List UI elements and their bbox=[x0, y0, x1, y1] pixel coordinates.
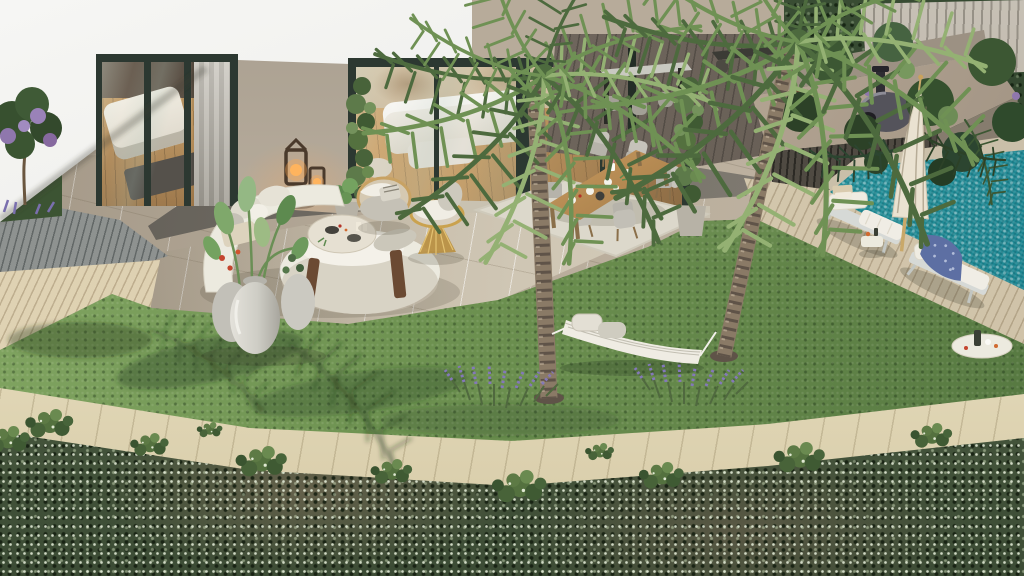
palm-shadows bbox=[8, 311, 620, 473]
sun-lounger bbox=[897, 227, 1004, 315]
hammock bbox=[552, 314, 716, 376]
wicker-armchair bbox=[358, 178, 410, 235]
scene-details bbox=[0, 0, 1024, 576]
hammock-pillow bbox=[598, 322, 626, 338]
hammock-pillow bbox=[572, 314, 602, 331]
serving-tray bbox=[952, 330, 1012, 358]
palm-tree bbox=[359, 0, 720, 404]
planter-urn bbox=[281, 274, 315, 330]
coffee-table bbox=[308, 215, 376, 253]
backyard-render: Aerial view of a luxury villa backyard w… bbox=[0, 0, 1024, 576]
